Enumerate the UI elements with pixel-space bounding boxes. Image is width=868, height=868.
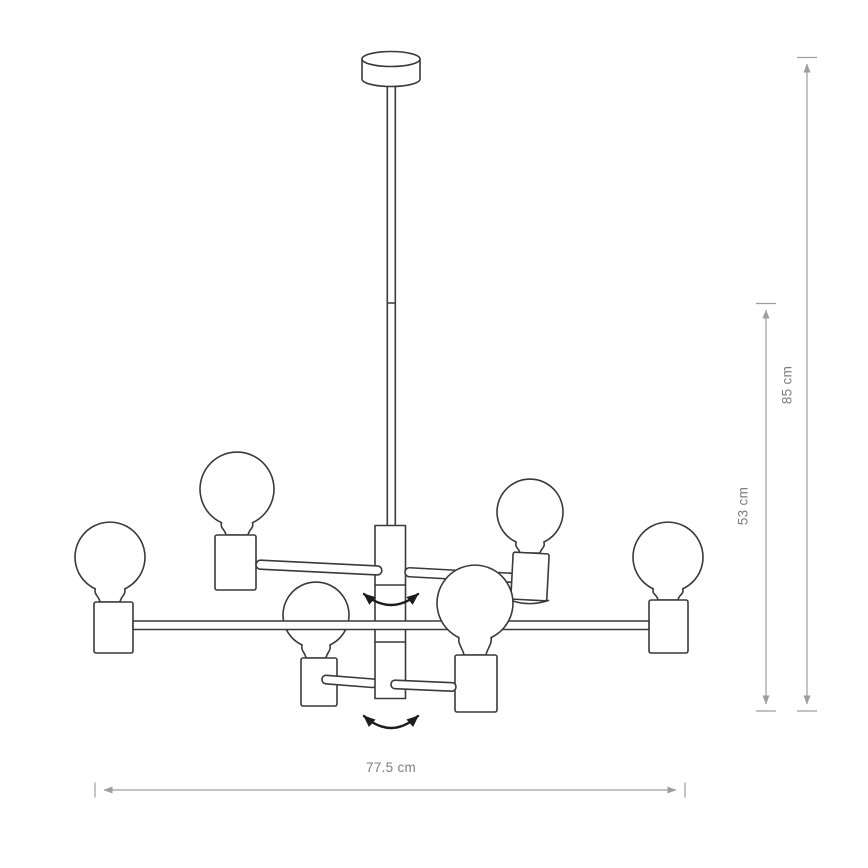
arm-lower-right	[391, 680, 456, 691]
bulb-far-right	[633, 522, 703, 653]
bulb-globe	[437, 565, 513, 655]
dimension-label-body-height: 53 cm	[736, 487, 751, 525]
suspension-rod	[387, 62, 395, 526]
arm-upper-left	[256, 560, 382, 575]
dimension-label-width: 77.5 cm	[366, 760, 416, 775]
dimension-line-total-height: 85 cm	[780, 58, 818, 712]
rotation-arrow-lower-icon	[364, 716, 418, 728]
bulb-globe	[633, 522, 703, 600]
bulb-socket	[215, 535, 256, 590]
bulb-socket	[455, 655, 497, 712]
ceiling-canopy	[362, 52, 420, 87]
dimension-label-total-height: 85 cm	[780, 366, 795, 404]
dimension-line-body-height: 53 cm	[736, 304, 777, 712]
bulb-socket	[511, 552, 549, 601]
product-dimension-diagram: 85 cm 53 cm 77.5 cm	[0, 0, 868, 868]
dimension-line-width: 77.5 cm	[95, 760, 685, 798]
bulb-socket	[94, 602, 133, 653]
bulb-globe	[200, 452, 274, 535]
bulb-globe	[497, 479, 563, 553]
chandelier-drawing: 85 cm 53 cm 77.5 cm	[0, 0, 868, 868]
central-hub	[375, 526, 406, 699]
bulb-socket	[649, 600, 688, 653]
bulb-far-left	[75, 522, 145, 653]
bulb-globe	[75, 522, 145, 602]
bulb-globe	[283, 582, 349, 658]
arm-middle-long	[133, 621, 649, 630]
bulb-center-left	[283, 582, 349, 706]
